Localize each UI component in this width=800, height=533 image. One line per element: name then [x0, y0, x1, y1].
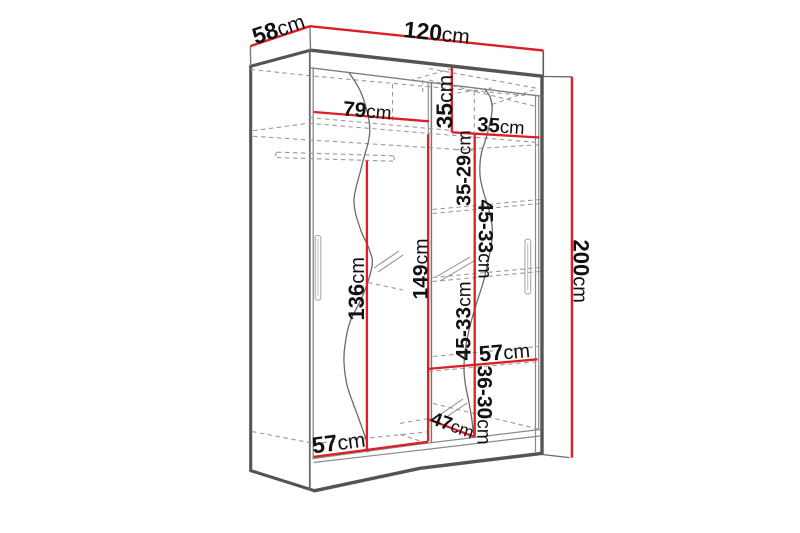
svg-text:45-33cm: 45-33cm [452, 281, 475, 360]
svg-text:36-30cm: 36-30cm [473, 366, 496, 445]
svg-text:35cm: 35cm [432, 75, 458, 129]
svg-text:149cm: 149cm [410, 238, 433, 299]
svg-text:200cm: 200cm [569, 240, 594, 303]
svg-text:35cm: 35cm [476, 113, 525, 139]
svg-text:35-29cm: 35-29cm [453, 130, 475, 206]
svg-text:136cm: 136cm [344, 257, 369, 320]
svg-text:45-33cm: 45-33cm [474, 200, 497, 279]
svg-text:57cm: 57cm [478, 337, 531, 366]
